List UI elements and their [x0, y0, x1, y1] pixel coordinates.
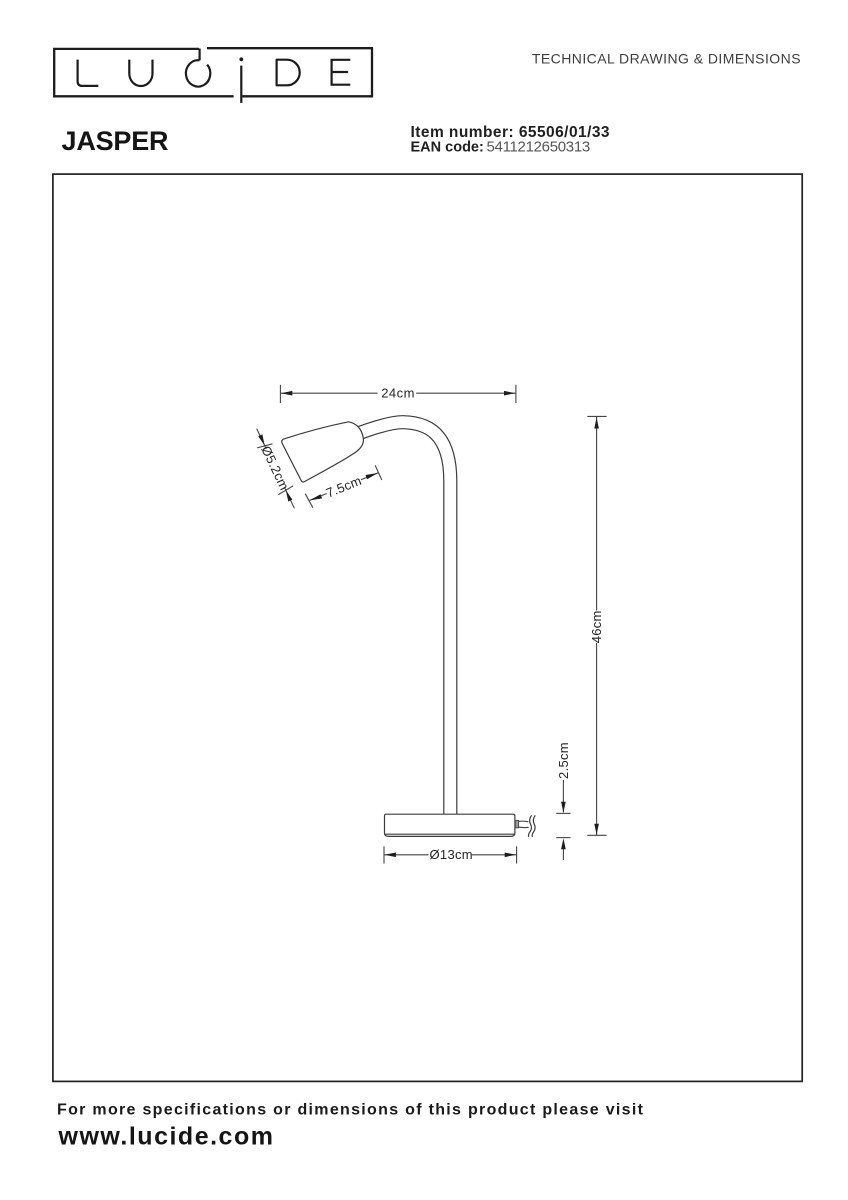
svg-text:Ø13cm: Ø13cm [430, 847, 473, 862]
svg-text:JASPER: JASPER [62, 126, 169, 156]
svg-text:46cm: 46cm [589, 610, 604, 643]
svg-text:24cm: 24cm [381, 386, 415, 401]
svg-text:EAN code:: EAN code: [411, 140, 484, 156]
svg-text:For more specifications or dim: For more specifications or dimensions of… [57, 1102, 644, 1119]
svg-text:www.lucide.com: www.lucide.com [58, 1123, 275, 1151]
svg-text:TECHNICAL DRAWING & DIMENSIONS: TECHNICAL DRAWING & DIMENSIONS [532, 51, 801, 67]
svg-text:7.5cm: 7.5cm [324, 473, 364, 501]
svg-text:5411212650313: 5411212650313 [487, 139, 590, 156]
svg-text:2.5cm: 2.5cm [556, 742, 571, 779]
